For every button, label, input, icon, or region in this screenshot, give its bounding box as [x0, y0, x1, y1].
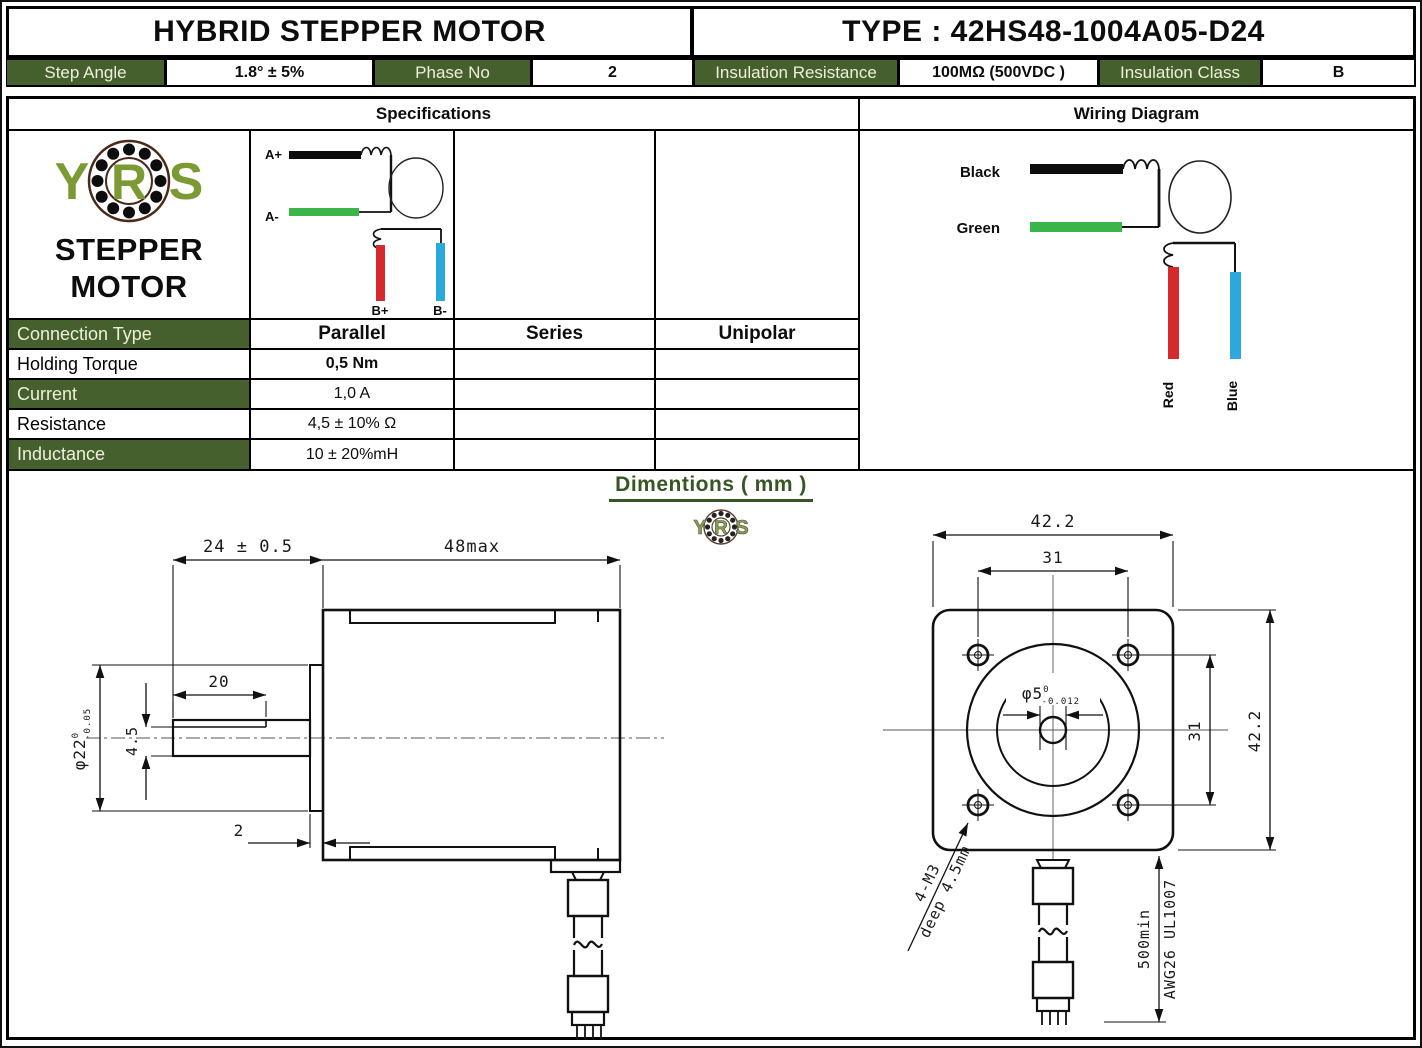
- svg-text:S: S: [735, 517, 748, 539]
- value-current-series: [455, 380, 656, 408]
- grid-line: [654, 131, 656, 318]
- dim-flange-width: 42.2: [1031, 512, 1076, 532]
- dim-shaft-length: 24 ± 0.5: [203, 537, 293, 557]
- dimensions-title-wrap: Dimentions ( mm ): [9, 473, 1413, 502]
- datasheet-page: HYBRID STEPPER MOTOR TYPE : 42HS48-1004A…: [0, 0, 1422, 1048]
- param-label-insulation-resistance: Insulation Resistance: [694, 58, 899, 87]
- motor-body-icon: [389, 158, 443, 218]
- dim-shaft-tol-lower: -0.012: [1042, 697, 1081, 707]
- table-row-holding-torque: Holding Torque 0,5 Nm: [9, 348, 858, 378]
- param-label-step-angle: Step Angle: [6, 58, 166, 87]
- wire-label-red: Red: [1160, 382, 1176, 408]
- brand-cell: Y R S STEPPER MOTOR: [9, 131, 251, 318]
- dim-hole-spacing-top: 31: [1042, 548, 1063, 567]
- value-holding-torque-series: [455, 350, 656, 378]
- lead-label-a-plus: A+: [265, 147, 282, 162]
- grid-line: [453, 131, 455, 318]
- row-label-connection-type: Connection Type: [9, 320, 251, 348]
- value-inductance-series: [455, 440, 656, 469]
- dim-shaft-diameter-value: φ5: [1022, 684, 1043, 703]
- row-label-holding-torque: Holding Torque: [9, 350, 251, 378]
- value-resistance-series: [455, 410, 656, 438]
- note-lead-wire: AWG26 UL1007: [1161, 879, 1179, 999]
- dim-pilot-tol-upper: 0: [71, 732, 81, 738]
- side-view-drawing: 24 ± 0.5 48max 20 4.5 φ220-0.05 2: [58, 518, 698, 1040]
- lead-label-a-minus: A-: [265, 209, 279, 224]
- lead-label-b-plus: B+: [372, 303, 389, 318]
- parameter-row: Step Angle 1.8° ± 5% Phase No 2 Insulati…: [6, 58, 1416, 87]
- dimensions-title: Dimentions ( mm ): [609, 473, 813, 502]
- dim-pilot-diameter-value: φ22: [70, 738, 89, 770]
- table-row-current: Current 1,0 A: [9, 378, 858, 408]
- table-row-connection-type: Connection Type Parallel Series Unipolar: [9, 318, 858, 348]
- value-current-unipolar: [656, 380, 858, 408]
- value-resistance-parallel: 4,5 ± 10% Ω: [251, 410, 455, 438]
- lead-label-b-minus: B-: [433, 303, 447, 318]
- wire-label-green: Green: [957, 220, 1000, 237]
- dim-pilot-tol-lower: -0.05: [83, 708, 93, 740]
- brand-name-line1: STEPPER: [55, 231, 203, 268]
- brand-name-line2: MOTOR: [70, 268, 187, 305]
- front-view-drawing: 42.2 31 φ50-0.012 31 42.2 4-M3 deep 4.5m…: [858, 503, 1328, 1041]
- value-inductance-parallel: 10 ± 20%mH: [251, 440, 455, 469]
- value-inductance-unipolar: [656, 440, 858, 469]
- dimensions-divider: [9, 469, 1413, 471]
- parallel-connection-icon: A+ A- B+ B-: [253, 133, 453, 316]
- column-header-series: Series: [455, 320, 656, 348]
- dim-pilot-depth: 2: [234, 821, 245, 840]
- param-value-insulation-class: B: [1262, 58, 1416, 87]
- param-label-insulation-class: Insulation Class: [1099, 58, 1262, 87]
- brand-letter-s: S: [169, 153, 204, 211]
- motor-body-icon: [1169, 161, 1231, 233]
- param-label-phase-no: Phase No: [374, 58, 532, 87]
- title-row: HYBRID STEPPER MOTOR TYPE : 42HS48-1004A…: [6, 6, 1416, 58]
- wiring-diagram: Black Green Red Blue: [860, 133, 1417, 467]
- value-current-parallel: 1,0 A: [251, 380, 455, 408]
- main-content: Specifications Wiring Diagram Y R S STEP…: [6, 96, 1416, 1040]
- type-title: TYPE : 42HS48-1004A05-D24: [692, 6, 1416, 58]
- table-row-resistance: Resistance 4,5 ± 10% Ω: [9, 408, 858, 438]
- column-header-parallel: Parallel: [251, 320, 455, 348]
- yrs-logo-small-icon: Y R S: [692, 504, 750, 550]
- dim-pilot-diameter: φ220-0.05: [70, 708, 93, 770]
- dim-hole-spacing-side: 31: [1185, 720, 1204, 741]
- yrs-logo-icon: Y R S: [24, 131, 234, 231]
- brand-letter-r: R: [111, 154, 147, 210]
- section-title-wiring-diagram: Wiring Diagram: [860, 99, 1413, 129]
- brand-letter-y: Y: [55, 153, 90, 211]
- row-label-inductance: Inductance: [9, 440, 251, 469]
- wire-label-blue: Blue: [1224, 381, 1240, 412]
- row-label-current: Current: [9, 380, 251, 408]
- wire-label-black: Black: [960, 164, 1001, 181]
- table-row-inductance: Inductance 10 ± 20%mH: [9, 438, 858, 469]
- param-value-insulation-resistance: 100MΩ (500VDC ): [899, 58, 1099, 87]
- param-value-step-angle: 1.8° ± 5%: [166, 58, 374, 87]
- row-label-resistance: Resistance: [9, 410, 251, 438]
- column-header-unipolar: Unipolar: [656, 320, 858, 348]
- dim-flat-length: 20: [208, 672, 229, 691]
- section-header-band: Specifications Wiring Diagram: [9, 99, 1413, 131]
- svg-text:R: R: [714, 518, 728, 539]
- dim-flange-height: 42.2: [1245, 710, 1264, 753]
- dim-shaft-tol-upper: 0: [1043, 685, 1049, 695]
- value-holding-torque-parallel: 0,5 Nm: [251, 350, 455, 378]
- product-title: HYBRID STEPPER MOTOR: [6, 6, 692, 58]
- param-value-phase-no: 2: [532, 58, 694, 87]
- section-title-specifications: Specifications: [9, 99, 858, 129]
- note-lead-length: 500min: [1135, 909, 1153, 969]
- dim-shaft-flat-height: 4.5: [123, 726, 141, 756]
- value-holding-torque-unipolar: [656, 350, 858, 378]
- dim-body-length: 48max: [444, 537, 500, 557]
- value-resistance-unipolar: [656, 410, 858, 438]
